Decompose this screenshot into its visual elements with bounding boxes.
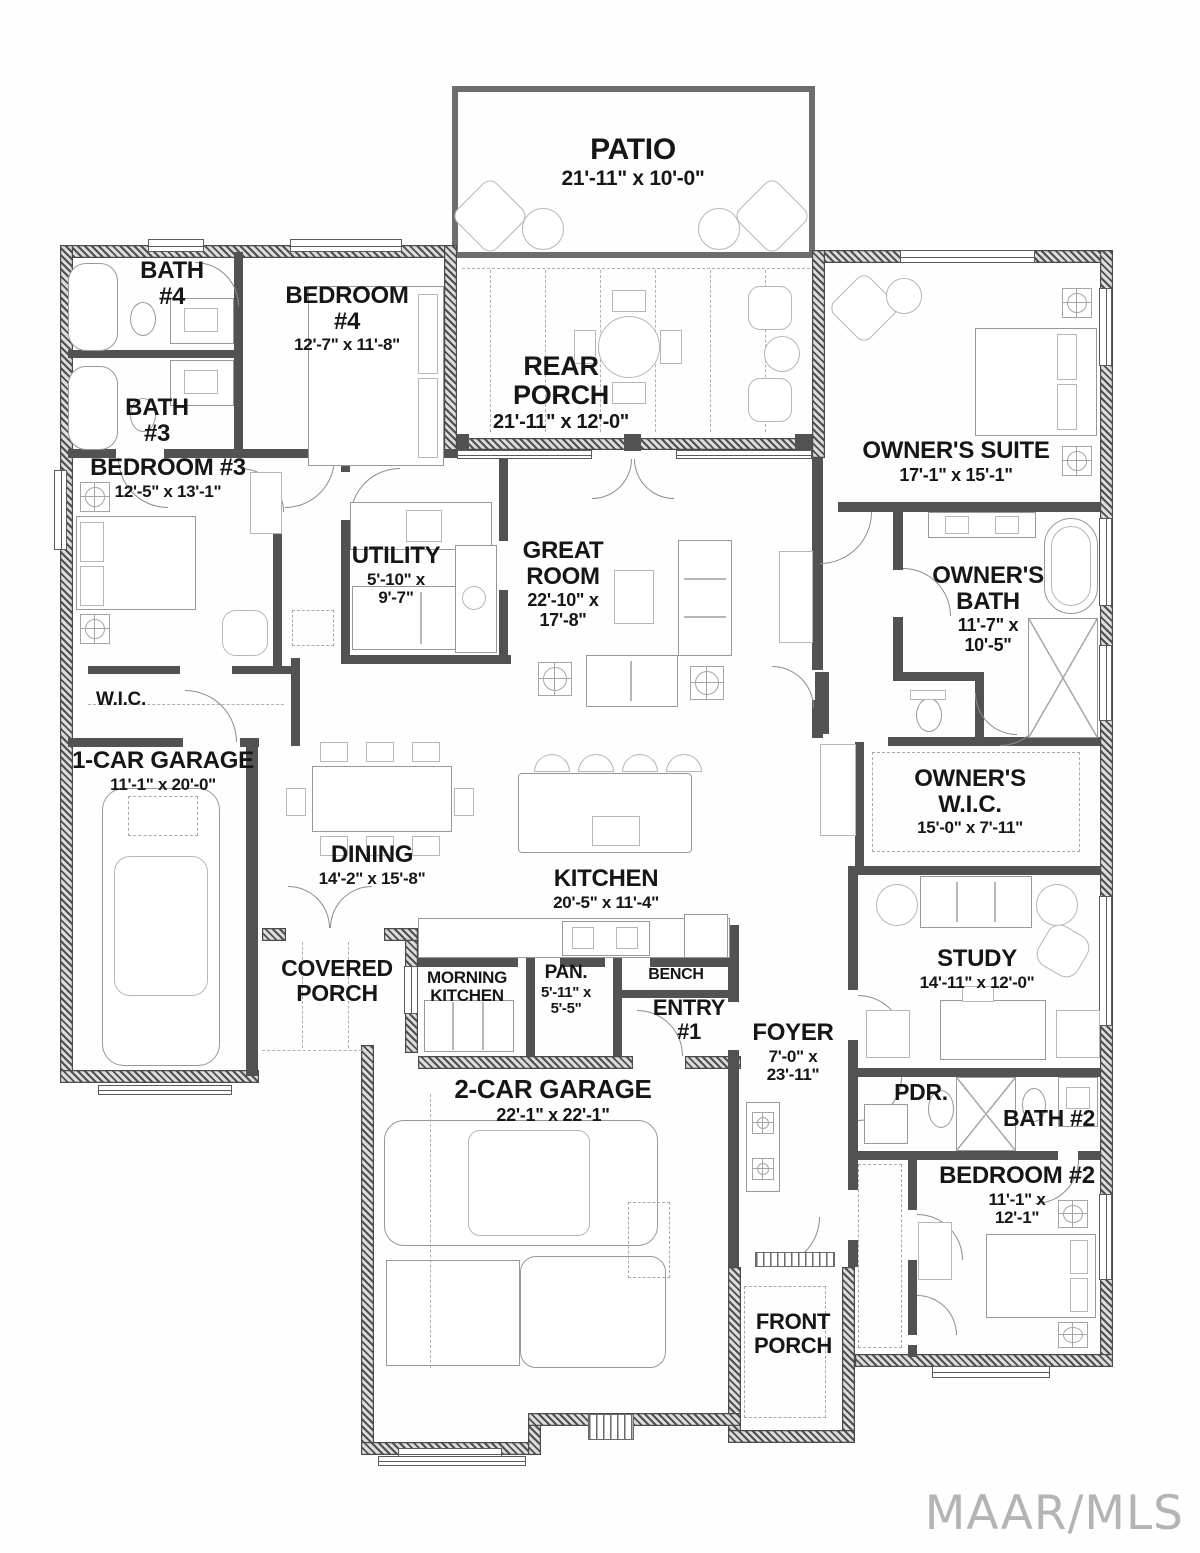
wall: [838, 502, 1100, 512]
covered-porch-wall: [384, 928, 418, 941]
window: [1099, 518, 1112, 606]
french-door: [634, 459, 674, 499]
burners: [572, 927, 594, 949]
patio-side-table: [698, 208, 740, 250]
exterior-wall: [60, 1070, 259, 1083]
room-label-bath3: BATH #3: [117, 395, 197, 446]
burners: [616, 927, 638, 949]
wall: [815, 672, 829, 734]
wall: [848, 875, 858, 990]
window: [404, 966, 418, 1014]
sofa: [678, 540, 732, 656]
garage-wall: [361, 1045, 374, 1455]
covered-porch-wall: [262, 928, 286, 941]
wall: [855, 742, 864, 866]
garage-wall: [418, 1056, 633, 1069]
desk: [940, 1000, 1046, 1060]
wall: [848, 1240, 858, 1267]
room-label-covered-porch: COVERED PORCH: [272, 956, 402, 1005]
utility-basin: [462, 586, 486, 610]
toilet-tank: [910, 690, 946, 700]
room-label-great-room: GREAT ROOM 22'-10" x 17'-8": [513, 538, 613, 630]
room-label-rear-porch: REAR PORCH 21'-11" x 12'-0": [493, 352, 629, 433]
room-label-dining: DINING 14'-2" x 15'-8": [319, 842, 426, 888]
garage-door: [378, 1456, 526, 1466]
wall: [893, 672, 984, 681]
pillow: [1057, 384, 1077, 430]
exterior-wall: [812, 250, 825, 458]
cushion-line: [956, 882, 958, 922]
room-label-garage2: 2-CAR GARAGE 22'-1" x 22'-1": [454, 1076, 651, 1125]
slab-line: [430, 1094, 431, 1368]
window-wall: [676, 450, 812, 459]
nightstand: [1062, 446, 1092, 476]
wall: [888, 737, 1100, 746]
porch-side-table: [764, 336, 800, 372]
nightstand: [1062, 288, 1092, 318]
wall: [499, 449, 508, 541]
cushion-line: [994, 882, 996, 922]
nightstand: [1058, 1322, 1088, 1348]
wall: [908, 1345, 917, 1357]
dining-chair: [366, 742, 394, 762]
window-wall: [457, 450, 592, 459]
console-detail: [752, 1158, 774, 1180]
cushion-line: [684, 616, 726, 618]
porch-open-edge: [262, 1050, 362, 1051]
window: [1099, 288, 1112, 366]
divider: [452, 1002, 454, 1050]
bathtub: [68, 263, 118, 351]
door-garage1: [185, 690, 237, 742]
room-label-bedroom3: BEDROOM #3 12'-5" x 13'-1": [90, 455, 246, 501]
pillow: [80, 566, 104, 606]
room-label-wic: W.I.C.: [96, 690, 146, 710]
sink: [945, 516, 969, 534]
exterior-wall: [60, 245, 73, 1083]
porch-armchair: [748, 378, 792, 422]
wall: [848, 1040, 858, 1190]
room-label-owners-wic: OWNER'S W.I.C. 15'-0" x 7'-11": [903, 766, 1038, 838]
wall: [908, 1260, 917, 1335]
door-hall: [772, 666, 814, 708]
room-label-bedroom2: BEDROOM #2 11'-1" x 12'-1": [939, 1163, 1095, 1227]
closet: [858, 1164, 902, 1348]
sink: [184, 370, 218, 394]
stool: [578, 754, 614, 772]
exterior-wall: [444, 245, 457, 458]
refrigerator: [684, 914, 728, 958]
window: [290, 239, 402, 252]
dining-chair: [412, 742, 440, 762]
room-label-entry1: ENTRY #1: [649, 996, 729, 1043]
room-label-pantry: PAN. 5'-11" x 5'-5": [537, 963, 595, 1017]
sink: [184, 308, 218, 332]
dining-chair: [320, 742, 348, 762]
side-table: [886, 278, 922, 314]
floor-plan: PATIO 21'-11" x 10'-0" REAR PORCH 21'-11…: [0, 0, 1200, 1553]
room-label-morning-kitchen: MORNING KITCHEN: [420, 969, 515, 1005]
window: [932, 1366, 1050, 1378]
window: [54, 470, 67, 550]
room-label-front-porch: FRONT PORCH: [748, 1310, 838, 1357]
porch-steps: [755, 1252, 835, 1267]
wall: [341, 655, 511, 664]
garage-door: [98, 1085, 232, 1095]
end-table: [690, 666, 724, 700]
divider: [482, 1002, 484, 1050]
utility-sink: [406, 510, 442, 542]
wall: [499, 590, 508, 664]
wall: [341, 520, 350, 662]
dining-chair: [454, 788, 474, 816]
french-door: [330, 886, 372, 928]
wall: [893, 617, 903, 672]
wall: [291, 658, 300, 746]
armchair: [222, 610, 268, 656]
room-label-kitchen: KITCHEN 20'-5" x 11'-4": [553, 866, 659, 912]
storage-area: [128, 796, 198, 836]
porch-chair: [612, 290, 646, 312]
cushion-line: [684, 578, 726, 580]
window: [1099, 645, 1112, 721]
porch-ceiling-line: [490, 270, 491, 432]
room-label-bench: BENCH: [648, 966, 703, 983]
mechanical-chase: [292, 610, 334, 646]
truck-bed: [386, 1260, 520, 1366]
pillow: [418, 378, 438, 458]
room-label-patio: PATIO 21'-11" x 10'-0": [561, 134, 704, 191]
room-label-bedroom4: BEDROOM #4 12'-7" x 11'-8": [280, 283, 415, 355]
dresser: [250, 472, 282, 534]
pillow: [1070, 1278, 1088, 1312]
bathtub: [68, 366, 118, 450]
wall: [613, 958, 622, 1056]
porch-ceiling-line: [710, 270, 711, 432]
door-closet-bedroom2: [917, 1295, 957, 1335]
wall: [858, 1151, 1058, 1160]
wall: [1078, 1151, 1100, 1160]
wall: [848, 866, 1100, 875]
wall: [232, 666, 291, 674]
round-table: [1036, 884, 1078, 926]
bed: [975, 328, 1097, 436]
garage-wall: [528, 1413, 741, 1426]
tub-inner: [1051, 526, 1091, 606]
dresser: [820, 744, 856, 836]
patio-side-table: [522, 208, 564, 250]
sofa: [920, 876, 1032, 928]
room-label-study: STUDY 14'-11" x 12'-0": [920, 946, 1035, 992]
window: [1099, 1194, 1112, 1280]
stool: [622, 754, 658, 772]
watermark-mls: MAAR/MLS: [925, 1486, 1184, 1541]
dining-table: [312, 766, 452, 832]
wall: [68, 738, 183, 747]
wall: [728, 1050, 739, 1267]
porch-chair: [660, 330, 682, 364]
loveseat: [586, 655, 678, 707]
wall: [812, 458, 823, 670]
stool: [666, 754, 702, 772]
console-table: [779, 551, 813, 643]
cabinets: [424, 1000, 514, 1052]
wall: [418, 958, 518, 967]
pillow: [80, 522, 104, 562]
porch-post: [795, 434, 812, 451]
nightstand: [80, 614, 110, 644]
wall: [848, 1068, 1100, 1077]
porch-armchair: [748, 286, 792, 330]
sink: [995, 516, 1019, 534]
file-cabinet: [866, 1010, 910, 1058]
end-table: [538, 662, 572, 696]
cushion-line: [630, 661, 632, 701]
wall: [526, 958, 535, 1056]
front-porch-wall: [728, 1430, 855, 1443]
window: [900, 250, 1035, 263]
wall: [908, 1160, 917, 1210]
file-cabinet: [1056, 1010, 1100, 1058]
door-owners-suite: [820, 512, 872, 564]
round-table: [876, 884, 918, 926]
porch-post: [624, 434, 641, 451]
island-sink: [592, 816, 640, 846]
garage-steps: [588, 1414, 634, 1440]
french-door: [288, 886, 330, 928]
room-label-garage1: 1-CAR GARAGE 11'-1" x 20'-0": [72, 748, 254, 794]
wall: [234, 252, 243, 452]
window: [1099, 896, 1112, 1026]
wall: [68, 350, 234, 358]
dining-chair: [286, 788, 306, 816]
window: [148, 239, 204, 252]
armchair: [1032, 920, 1095, 983]
room-label-owners-bath: OWNER'S BATH 11'-7" x 10'-5": [926, 563, 1051, 655]
pillow: [1057, 334, 1077, 380]
french-door: [592, 459, 632, 499]
car-roof: [114, 856, 208, 996]
room-label-pdr: PDR.: [894, 1080, 948, 1105]
wall: [88, 666, 180, 674]
console-detail: [752, 1112, 774, 1134]
room-label-foyer: FOYER 7'-0" x 23'-11": [752, 1020, 833, 1084]
stool: [534, 754, 570, 772]
toilet: [916, 698, 942, 732]
front-porch-wall: [842, 1267, 855, 1443]
accent-chair: [614, 570, 654, 624]
room-label-owners-suite: OWNER'S SUITE 17'-1" x 15'-1": [862, 438, 1049, 485]
porch-ceiling-line: [462, 268, 810, 269]
suv-roof: [468, 1130, 590, 1236]
wall: [893, 512, 903, 570]
room-label-utility: UTILITY 5'-10" x 9'-7": [352, 543, 441, 607]
pillow: [418, 294, 438, 374]
pillow: [1070, 1240, 1088, 1274]
room-label-bath4: BATH #4: [132, 258, 212, 309]
room-label-bath2: BATH #2: [1003, 1106, 1095, 1131]
attic-access: [628, 1202, 670, 1278]
sink: [864, 1104, 908, 1144]
dresser: [918, 1222, 952, 1280]
